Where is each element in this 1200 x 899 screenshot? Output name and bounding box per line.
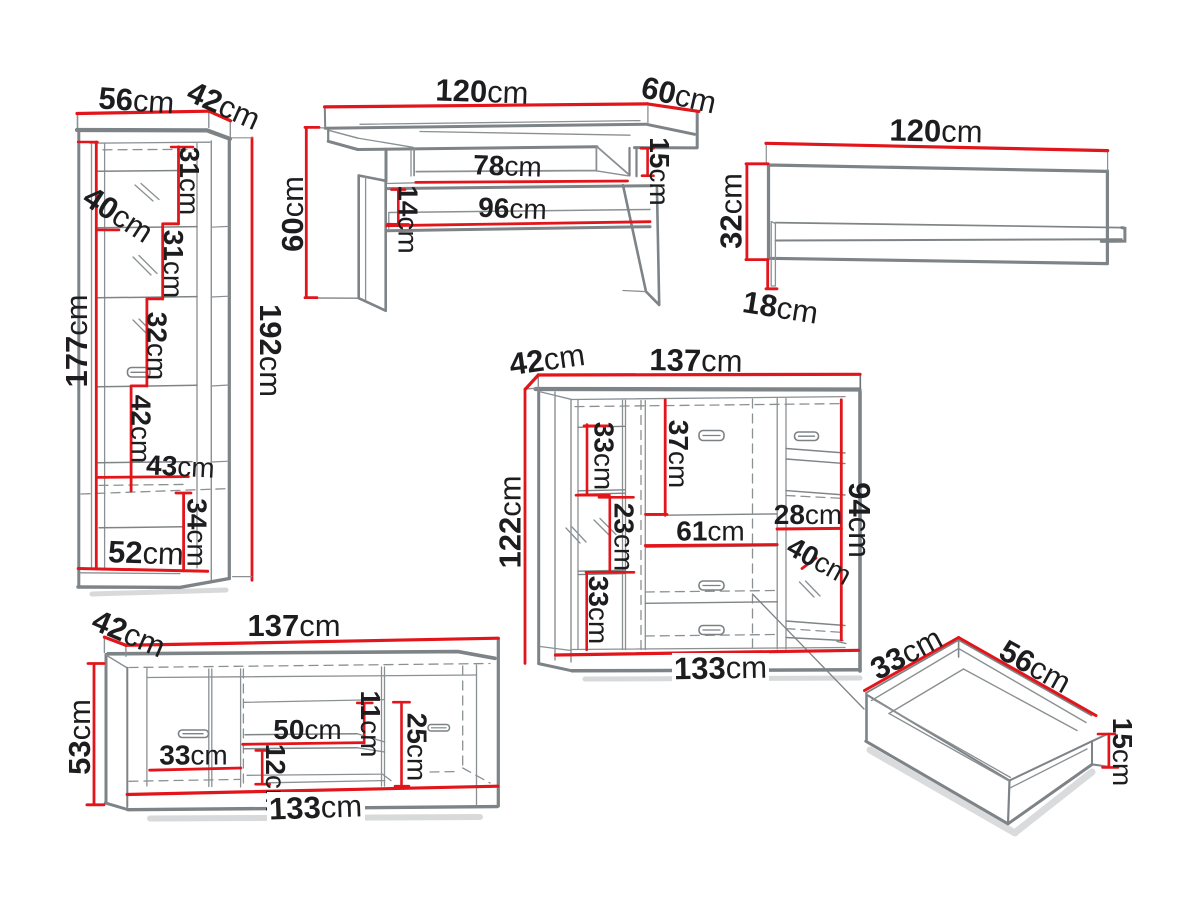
svg-text:11cm: 11cm: [355, 691, 386, 758]
svg-text:15cm: 15cm: [644, 137, 675, 205]
svg-text:120cm: 120cm: [435, 72, 529, 110]
svg-text:78cm: 78cm: [473, 149, 543, 182]
svg-text:94cm: 94cm: [842, 482, 877, 558]
svg-text:25cm: 25cm: [402, 713, 433, 781]
svg-text:32cm: 32cm: [714, 173, 749, 249]
svg-text:52cm: 52cm: [107, 534, 184, 572]
svg-text:43cm: 43cm: [145, 449, 215, 484]
svg-text:133cm: 133cm: [268, 788, 362, 826]
svg-text:137cm: 137cm: [649, 342, 743, 379]
svg-text:61cm: 61cm: [676, 516, 744, 547]
svg-text:177cm: 177cm: [59, 294, 94, 387]
svg-text:33cm: 33cm: [159, 740, 227, 771]
svg-text:96cm: 96cm: [478, 192, 548, 225]
svg-text:53cm: 53cm: [62, 699, 97, 775]
svg-text:56cm: 56cm: [97, 80, 175, 120]
svg-text:23cm: 23cm: [609, 503, 640, 571]
svg-text:31cm: 31cm: [158, 230, 189, 298]
svg-text:133cm: 133cm: [674, 650, 768, 687]
svg-text:37cm: 37cm: [663, 420, 694, 488]
svg-text:34cm: 34cm: [182, 498, 213, 566]
svg-text:137cm: 137cm: [247, 608, 340, 643]
svg-text:15cm: 15cm: [1107, 718, 1138, 786]
svg-text:32cm: 32cm: [142, 312, 173, 380]
svg-text:31cm: 31cm: [174, 147, 205, 215]
svg-text:60cm: 60cm: [275, 176, 310, 252]
svg-text:120cm: 120cm: [889, 113, 983, 150]
svg-text:192cm: 192cm: [253, 304, 288, 397]
svg-text:122cm: 122cm: [493, 475, 528, 568]
svg-text:14cm: 14cm: [393, 185, 424, 253]
svg-text:33cm: 33cm: [589, 422, 620, 490]
svg-text:33cm: 33cm: [583, 576, 614, 644]
svg-text:28cm: 28cm: [774, 499, 842, 530]
svg-text:50cm: 50cm: [273, 714, 341, 745]
